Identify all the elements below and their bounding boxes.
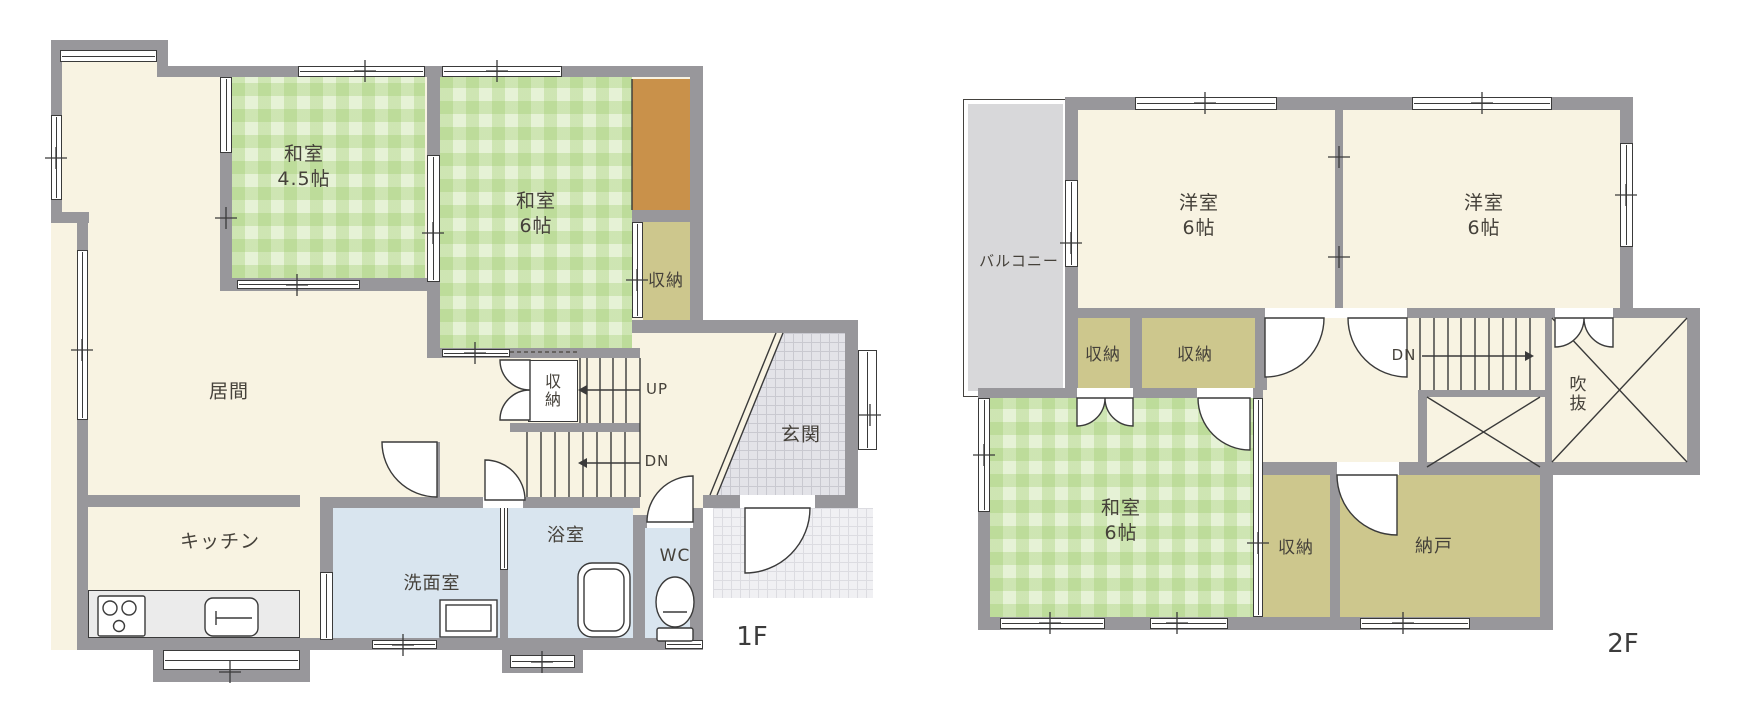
floor-1-label: 1F — [736, 620, 768, 654]
window — [77, 250, 88, 420]
sliding-door — [427, 155, 440, 282]
door-opening — [1265, 308, 1407, 318]
label-washitsu-45: 和室 4.5帖 — [277, 142, 330, 192]
room-entrance — [703, 333, 845, 497]
label-yoshitsu-right: 洋室 6帖 — [1464, 191, 1504, 241]
wall — [703, 320, 858, 333]
bay-window — [163, 650, 300, 670]
window — [665, 640, 703, 649]
label-void: 吹抜 — [1568, 376, 1588, 414]
label-entrance: 玄関 — [781, 422, 821, 447]
floor2-upper-band — [1065, 97, 1633, 318]
window — [1000, 618, 1105, 629]
wall — [632, 210, 690, 222]
label-closet-c: 収納 — [1278, 537, 1314, 559]
room-name: 和室 — [516, 189, 556, 214]
label-closet-a: 収納 — [1085, 344, 1121, 366]
entrance-porch — [713, 508, 873, 598]
window — [1065, 180, 1078, 267]
wall — [510, 423, 640, 432]
window — [1135, 97, 1277, 110]
label-yoshitsu-left: 洋室 6帖 — [1179, 191, 1219, 241]
folding-door — [500, 505, 508, 570]
label-stairs-down-2f: DN — [1392, 346, 1417, 366]
room-name: 洋室 — [1179, 191, 1219, 216]
window — [442, 66, 562, 77]
wall — [632, 320, 703, 333]
bay-window — [858, 350, 877, 450]
window — [978, 398, 990, 512]
label-kitchen: キッチン — [180, 529, 260, 554]
label-storeroom: 納戸 — [1415, 535, 1453, 559]
floorplan-canvas: 和室 4.5帖 和室 6帖 収納 収納 居間 キッチン 洗面室 浴室 WC 玄関… — [0, 0, 1750, 727]
window — [1412, 97, 1552, 110]
wall — [633, 515, 645, 650]
tokonoma-closet — [632, 79, 690, 210]
door-opening — [1555, 308, 1613, 318]
sliding-door — [237, 280, 360, 289]
window — [1360, 618, 1470, 629]
room-size: 6帖 — [1464, 216, 1504, 241]
wall — [1687, 308, 1700, 475]
window — [298, 66, 425, 77]
wall — [1418, 390, 1545, 397]
label-stair-closet: 収納 — [543, 373, 563, 409]
wall — [1253, 462, 1700, 475]
wall — [1130, 318, 1142, 390]
floor-2-label: 2F — [1607, 627, 1639, 661]
label-washitsu-2f: 和室 6帖 — [1101, 496, 1141, 546]
room-balcony — [968, 104, 1063, 391]
wall — [1418, 390, 1427, 470]
window — [1150, 618, 1228, 629]
label-closet-b: 収納 — [1177, 344, 1213, 366]
window — [51, 115, 62, 200]
sliding-door — [220, 77, 232, 153]
room-name: 和室 — [1101, 496, 1141, 521]
door-opening — [647, 515, 693, 528]
room-name: 洋室 — [1464, 191, 1504, 216]
door-opening — [1077, 388, 1133, 398]
label-stairs-down-1f: DN — [645, 452, 670, 472]
window — [1620, 143, 1633, 247]
wall — [1335, 110, 1343, 308]
pocket-door — [320, 572, 333, 640]
room-size: 4.5帖 — [277, 167, 330, 192]
wall — [153, 670, 310, 682]
door-opening — [483, 497, 523, 508]
window — [60, 50, 157, 62]
room-living-upper-left — [51, 42, 168, 650]
door-opening — [740, 495, 815, 508]
label-living: 居間 — [209, 379, 249, 404]
label-stairs-up: UP — [646, 380, 668, 400]
room-size: 6帖 — [516, 214, 556, 239]
wall — [320, 497, 640, 508]
room-size: 6帖 — [1179, 216, 1219, 241]
label-washitsu-6: 和室 6帖 — [516, 189, 556, 239]
door-opening — [1337, 462, 1399, 475]
door-opening — [1197, 388, 1253, 398]
window — [372, 640, 437, 649]
wall — [1540, 462, 1553, 630]
sliding-door — [1253, 398, 1263, 617]
label-wc: WC — [660, 545, 691, 567]
kitchen-counter — [88, 590, 300, 638]
label-bathroom: 浴室 — [547, 524, 585, 548]
label-balcony: バルコニー — [979, 252, 1059, 272]
wall — [690, 508, 703, 650]
wall — [88, 495, 300, 507]
wall — [1545, 318, 1552, 462]
bay-window — [510, 655, 575, 668]
room-name: 和室 — [277, 142, 330, 167]
wall — [1255, 308, 1267, 390]
label-washroom: 洗面室 — [404, 572, 461, 596]
wall — [690, 66, 703, 333]
sliding-door — [442, 349, 510, 357]
sliding-door — [632, 222, 643, 318]
wall — [845, 320, 858, 508]
label-closet-right-1f: 収納 — [648, 270, 684, 292]
room-size: 6帖 — [1101, 521, 1141, 546]
wall — [1330, 475, 1340, 617]
wall — [430, 442, 440, 497]
